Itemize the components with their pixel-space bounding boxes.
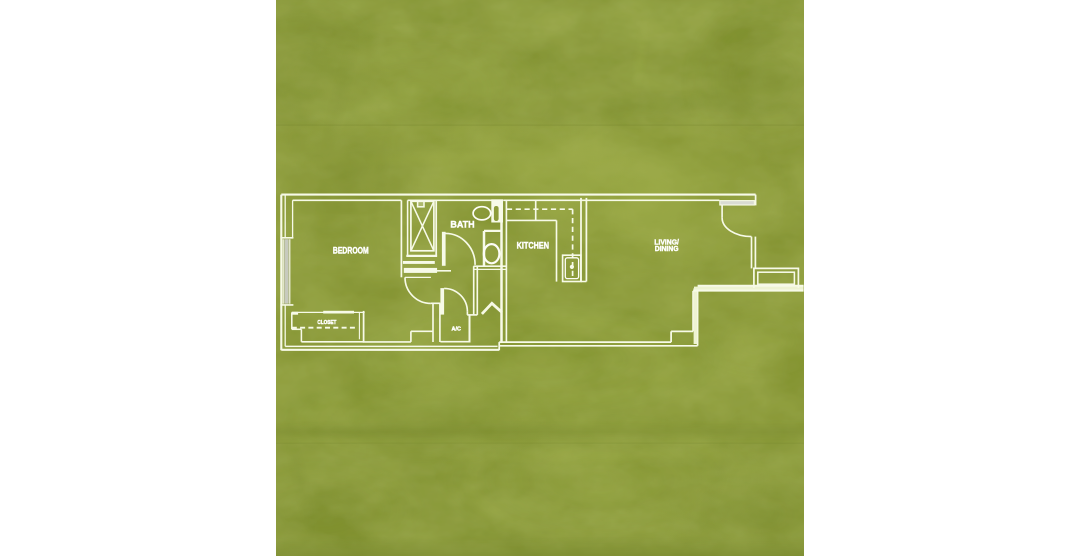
svg-text:DINING: DINING	[655, 244, 679, 253]
svg-text:CLOSET: CLOSET	[317, 320, 337, 326]
svg-text:A/C: A/C	[452, 326, 461, 332]
svg-text:KITCHEN: KITCHEN	[517, 241, 549, 251]
svg-text:BATH: BATH	[450, 220, 475, 230]
svg-text:BEDROOM: BEDROOM	[333, 245, 369, 255]
